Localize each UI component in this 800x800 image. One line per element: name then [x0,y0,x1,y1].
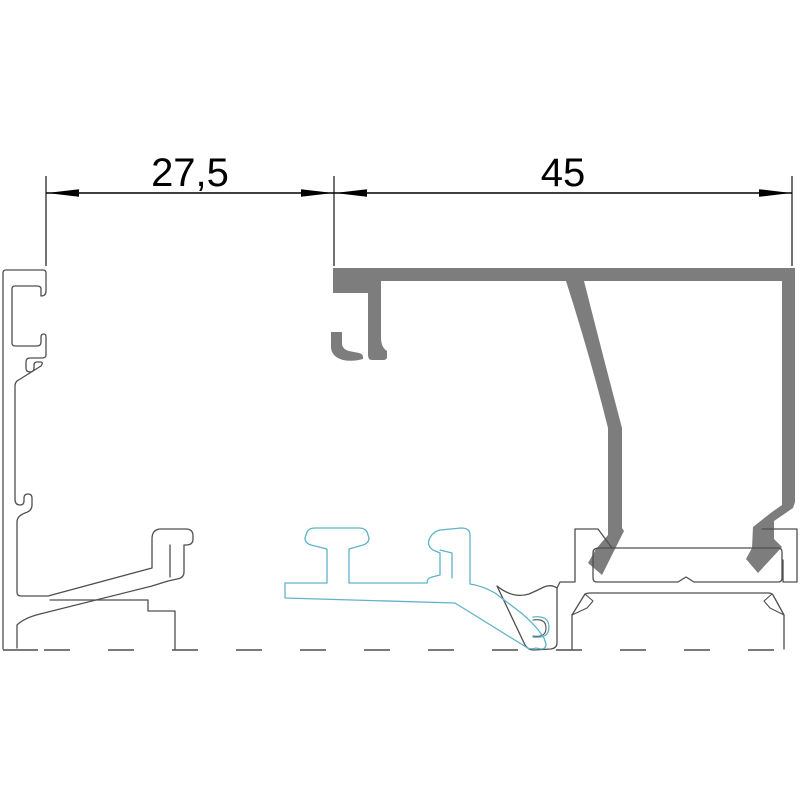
clip-hook-inner [440,550,452,578]
dim-right-label: 45 [541,151,586,195]
gasket-pocket-bulb [533,620,546,637]
frame-lower-channel [572,593,784,615]
sash-profile [331,268,795,575]
dim-left-label: 27,5 [151,151,229,195]
profile-cross-section-drawing: 27,545 [0,0,800,800]
dim-left-arrow-right [301,189,333,197]
dimension-layer: 27,545 [46,151,792,266]
sash-top-bar [333,268,795,360]
dim-left-arrow-left [47,189,79,197]
clip-t-head [305,528,369,583]
dim-right-arrow-right [759,189,791,197]
clip-lower-rail [285,583,536,649]
frame-outer-walls [572,615,784,649]
left-jamb-profile [3,270,193,649]
dim-right-arrow-left [335,189,367,197]
clip-hook-upstand [427,528,520,612]
sash-groove-lip [331,332,363,361]
gasket-and-clips [285,528,549,649]
bottom-frame [497,529,797,650]
jamb-main-contour [3,270,193,649]
